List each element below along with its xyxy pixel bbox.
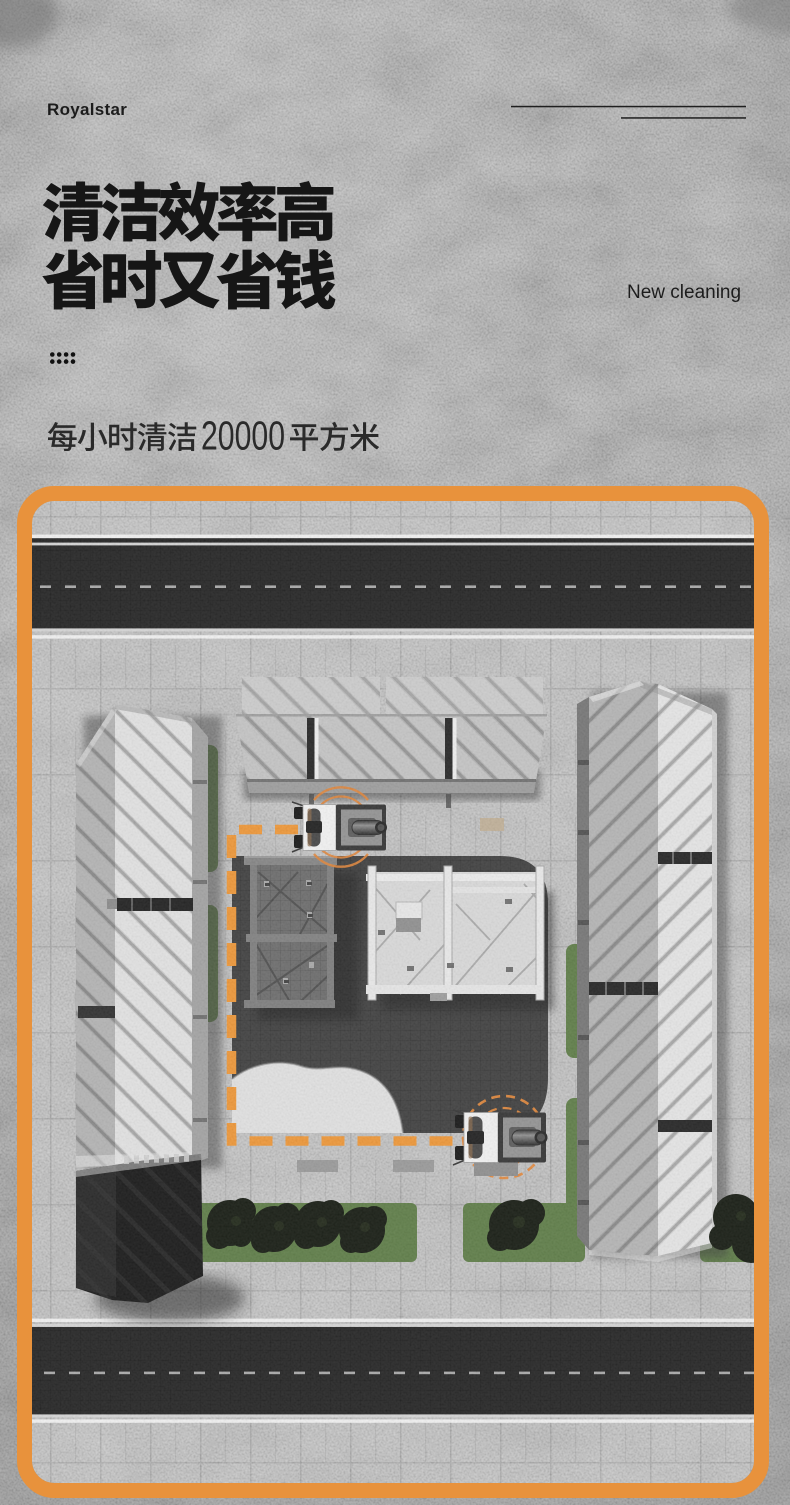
svg-text:New cleaning: New cleaning bbox=[627, 282, 741, 303]
svg-text:Royalstar: Royalstar bbox=[47, 100, 127, 119]
svg-text:20000: 20000 bbox=[201, 413, 285, 459]
